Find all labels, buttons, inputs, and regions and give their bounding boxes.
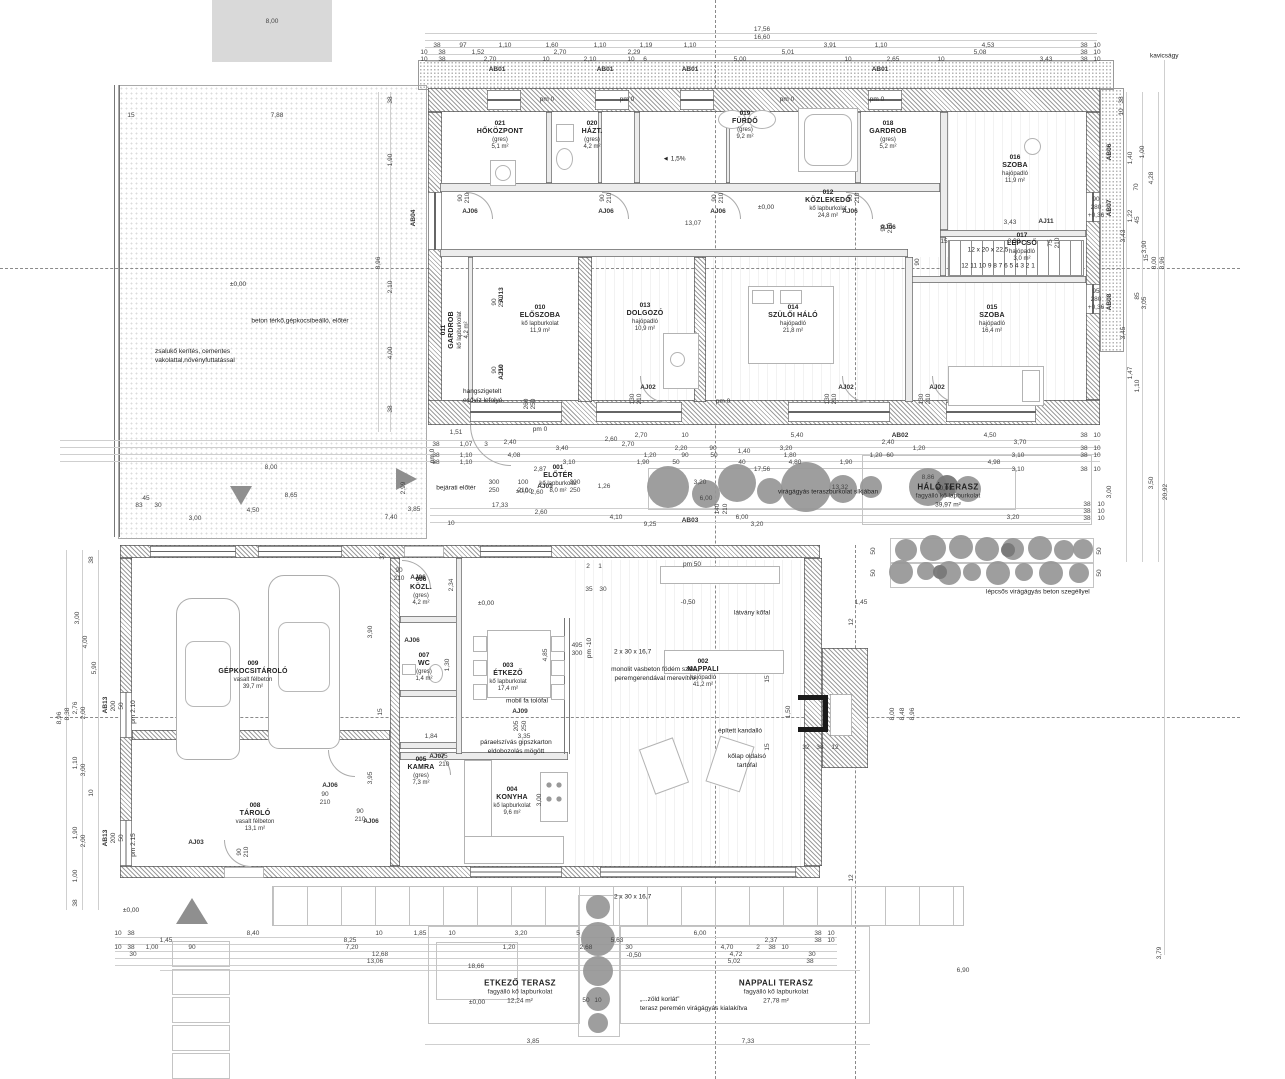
paving-pad — [172, 969, 230, 995]
washer-icon — [556, 124, 574, 142]
window-opening — [595, 90, 629, 110]
wall-stair-side — [940, 237, 946, 276]
dimension-label: 5,08 — [974, 50, 987, 57]
door-swing — [602, 192, 629, 219]
door-swing — [466, 192, 493, 219]
dimension-label: 200 — [111, 833, 118, 844]
wall-upper-top — [428, 88, 1100, 112]
dimension-label: 10 — [1097, 516, 1104, 523]
terrace-outline-nappali — [620, 926, 870, 1024]
annotation-note: mobil fa tolófal — [506, 698, 548, 707]
dimension-label: 15 — [1144, 254, 1151, 261]
chair-icon — [551, 636, 565, 652]
dimension-label: 38 — [1080, 50, 1087, 57]
kitchen-counter-icon — [464, 836, 564, 864]
wall-kitchen-top — [400, 752, 568, 760]
room-name: ELŐTÉR — [539, 472, 576, 481]
dimension-label: 200 — [111, 701, 118, 712]
dimension-label: 90 — [492, 366, 499, 373]
paving-pad — [172, 941, 230, 967]
dimension-label: 45 — [1135, 216, 1142, 223]
dimension-label: 5,40 — [791, 433, 804, 440]
room-area: 24,8 m² — [805, 213, 851, 221]
window-opening — [120, 820, 132, 866]
component-tag: AB13 — [103, 697, 110, 714]
component-tag: AB13 — [103, 830, 110, 847]
dimension-label: 3,35 — [518, 734, 531, 741]
fence-line — [114, 85, 120, 537]
dimension-label: 1,90 — [73, 827, 80, 840]
staircase-treads — [948, 240, 1084, 276]
annotation-note: bejárati előtér — [436, 485, 475, 494]
dimension-label: 38 — [1080, 433, 1087, 440]
dimension-label: 8,00 — [890, 708, 897, 721]
paving-pad — [172, 997, 230, 1023]
garage-door-opening — [258, 546, 342, 557]
room-stamp: 021 HŐKÖZPONT (gres) 5,1 m² — [477, 120, 524, 152]
dimension-label: 85 — [1135, 292, 1142, 299]
dim-line — [1142, 92, 1143, 562]
dim-line — [60, 440, 1100, 441]
chair-icon — [670, 352, 685, 367]
wall-partition-thick — [578, 257, 592, 402]
dimension-label: 50 — [871, 547, 878, 554]
floor-plan-canvas: 17,5616,6038971,101,601,101,191,103,911,… — [0, 0, 1285, 1079]
window-opening — [487, 90, 521, 110]
dimension-label: 3,90 — [368, 626, 375, 639]
dimension-label: 10 — [681, 433, 688, 440]
dimension-label: 38 — [433, 43, 440, 50]
dimension-label: 8,48 — [900, 708, 907, 721]
toilet-icon — [428, 664, 443, 683]
wall-room015-top — [912, 276, 1086, 283]
dimension-label: 6,90 — [957, 968, 970, 975]
planting-bed-outline — [890, 538, 1094, 564]
dimension-label: 205 — [514, 721, 521, 732]
dimension-label: 4,00 — [83, 636, 90, 649]
dimension-label: 38 — [438, 50, 445, 57]
component-tag: AJ06 — [404, 638, 420, 645]
room-area: 4,2 m² — [410, 600, 432, 608]
window-opening — [120, 692, 132, 738]
dim-line — [66, 550, 67, 910]
dimension-label: 10 — [1093, 43, 1100, 50]
dimension-label: 1,10 — [875, 43, 888, 50]
window-opening — [596, 402, 682, 422]
dimension-label: 4,50 — [984, 433, 997, 440]
dimension-label: 1,84 — [425, 734, 438, 741]
dimension-label: 3,00 — [1107, 486, 1114, 499]
gravel-bed-top — [418, 60, 1114, 90]
dimension-label: 210 — [320, 800, 331, 807]
site-gray-block — [212, 0, 332, 62]
dim-line — [98, 550, 99, 910]
dimension-label: 1,19 — [640, 43, 653, 50]
dimension-label: 90 — [881, 224, 888, 231]
level-marker: pm 0 — [533, 427, 547, 434]
window-opening — [480, 546, 552, 557]
dimension-label: 2,76 — [73, 702, 80, 715]
dimension-label: 3,79 — [1157, 947, 1164, 960]
entrance-arrow-marker — [396, 468, 417, 490]
dim-line — [1158, 92, 1159, 562]
dimension-label: 3,91 — [824, 43, 837, 50]
dim-line — [425, 47, 1097, 48]
chair-icon — [551, 684, 565, 700]
dimension-label: 300 — [570, 480, 581, 487]
car-icon — [268, 575, 340, 749]
dimension-label: 2,87 — [534, 467, 547, 474]
dimension-label: 2,29 — [628, 50, 641, 57]
level-marker: ±0,00 — [123, 908, 139, 915]
dimension-label: 90 — [458, 194, 465, 201]
room-floor-finish: (gres) — [477, 137, 524, 145]
component-tag: AJ06 — [880, 225, 896, 232]
room-number: 021 — [477, 120, 524, 128]
wall-partition — [468, 257, 473, 402]
room-number: 001 — [539, 464, 576, 472]
dimension-label: 100 — [518, 480, 529, 487]
door-swing — [402, 560, 431, 589]
room-stamp: 004 KONYHA kő lapburkolat 9,6 m² — [493, 786, 530, 818]
dimension-label: 50 — [1097, 547, 1104, 554]
door-swing-entrance — [470, 425, 511, 466]
dim-line — [390, 92, 391, 432]
dimension-label: 1,52 — [472, 50, 485, 57]
driveway-paving — [118, 85, 427, 539]
room-number: 008 — [236, 802, 275, 810]
dim-line — [1126, 92, 1127, 562]
dim-line — [425, 40, 1097, 41]
direction-marker — [176, 898, 208, 924]
dimension-label: 15 — [378, 708, 385, 715]
room-area: 5,2 m² — [869, 144, 907, 152]
room-floor-finish: kő lapburkolat — [539, 481, 576, 489]
dimension-label: 90 — [356, 809, 363, 816]
component-tag: AJ10 — [499, 364, 506, 380]
dimension-label: 300 — [489, 480, 500, 487]
component-tag: AB03 — [682, 518, 699, 525]
floor-wood-room016 — [948, 112, 1082, 230]
dimension-label: 210 — [355, 817, 366, 824]
room-area: 9,6 m² — [493, 810, 530, 818]
dimension-label: 10 — [1093, 467, 1100, 474]
window-opening — [600, 867, 796, 877]
car-icon — [176, 598, 240, 760]
room-floor-finish: kő lapburkolat — [457, 311, 465, 349]
car-cabin — [278, 622, 330, 692]
bathtub-basin-icon — [804, 114, 852, 166]
door-swing — [714, 192, 741, 219]
window-opening — [428, 192, 442, 250]
wall-garage-separator — [390, 558, 400, 866]
room-area: 8,0 m² — [539, 488, 576, 496]
dimension-label: 250 — [522, 721, 529, 732]
dimension-label: 250 — [499, 297, 506, 308]
dim-line — [425, 61, 1097, 62]
garage-door-opening — [150, 546, 236, 557]
dimension-label: 1,40 — [1128, 152, 1135, 165]
gravel-bed-right — [1100, 88, 1124, 352]
dimension-label: 10 — [1097, 502, 1104, 509]
sink-icon — [748, 110, 776, 129]
dimension-label: 3,00 — [75, 612, 82, 625]
dimension-label: 3,50 — [1149, 477, 1156, 490]
dimension-label: 90 — [321, 792, 328, 799]
room-stamp: 001 ELŐTÉR kő lapburkolat 8,0 m² — [539, 464, 576, 496]
window-opening — [1086, 284, 1100, 314]
dimension-label: 250 — [489, 488, 500, 495]
chair-icon — [473, 660, 487, 676]
room-number: 010 — [520, 304, 561, 312]
room-floor-finish: kő lapburkolat — [520, 321, 561, 329]
dimension-label: 10 — [1093, 433, 1100, 440]
room-area: 13,1 m² — [236, 826, 275, 834]
room-name: TÁROLÓ — [236, 810, 275, 819]
dimension-label: 250 — [499, 365, 506, 376]
dimension-label: 1,60 — [546, 43, 559, 50]
dimension-label: 1,26 — [598, 484, 611, 491]
paving-pad — [172, 1053, 230, 1079]
terrace-table-ghost — [436, 942, 518, 1000]
wall-storage-top — [132, 730, 390, 740]
direction-marker — [230, 486, 252, 505]
dimension-label: 38 — [73, 899, 80, 906]
dimension-label: 8,96 — [910, 708, 917, 721]
chair-icon — [1024, 138, 1041, 155]
sink-icon — [402, 664, 416, 675]
dimension-label: 10 — [1097, 509, 1104, 516]
room-number: 007 — [415, 652, 432, 660]
room-name: GARDROB — [448, 311, 457, 349]
dimension-label: 2,70 — [635, 433, 648, 440]
component-tag: AJ03 — [188, 840, 204, 847]
dimension-label: 10 — [89, 789, 96, 796]
room-stamp: 008 TÁROLÓ vasalt félbeton 13,1 m² — [236, 802, 275, 834]
dimension-label: 1,22 — [1128, 210, 1135, 223]
door-opening — [224, 867, 264, 878]
room-number: 004 — [493, 786, 530, 794]
window-opening — [470, 867, 562, 877]
dimension-label: 10 — [1093, 50, 1100, 57]
paving-pad — [172, 1025, 230, 1051]
walkway-slats — [272, 886, 964, 926]
dimension-label: 50 — [871, 569, 878, 576]
wall-upper-right — [1086, 112, 1100, 400]
chair-icon — [473, 684, 487, 700]
wall-upper-left — [428, 112, 442, 425]
room-name: KONYHA — [493, 794, 530, 803]
wall-partition — [400, 742, 458, 749]
dimension-label: 10 — [420, 50, 427, 57]
dimension-label: 70 — [1134, 183, 1141, 190]
dim-line — [1164, 60, 1165, 955]
room-name: HŐKÖZPONT — [477, 128, 524, 137]
wall-corridor-bottom — [440, 249, 908, 257]
pillow-icon — [1022, 370, 1040, 402]
dimension-label: 250 — [570, 488, 581, 495]
dimension-label: 2,60 — [531, 490, 544, 497]
dimension-label: 5,01 — [782, 50, 795, 57]
room-floor-finish: vasalt félbeton — [236, 819, 275, 827]
pillow-icon — [780, 290, 802, 304]
room-floor-finish: (gres) — [869, 137, 907, 145]
dimension-label: 210 — [888, 223, 895, 234]
component-tag: AJ01 — [537, 484, 553, 491]
window-opening — [1086, 192, 1100, 222]
window-opening — [868, 90, 902, 110]
window-opening — [470, 402, 562, 422]
level-marker: ±0,00 — [516, 489, 532, 496]
dim-line — [425, 54, 1097, 55]
dimension-label: 1,00 — [1140, 146, 1147, 159]
component-tag: AJ06 — [322, 783, 338, 790]
boiler-dial-icon — [495, 165, 511, 181]
room-stamp: 012 KÖZLEKEDŐ kő lapburkolat 24,8 m² — [805, 189, 851, 221]
dimension-label: 1,00 — [73, 870, 80, 883]
dimension-label: 97 — [459, 43, 466, 50]
dimension-label: 1,10 — [73, 757, 80, 770]
dim-line — [82, 550, 83, 910]
wall-lower-right-stone — [804, 558, 822, 866]
dimension-label: 1,10 — [1135, 380, 1142, 393]
room-stamp: 010 ELŐSZOBA kő lapburkolat 11,9 m² — [520, 304, 561, 336]
sink-icon — [718, 110, 746, 129]
room-floor-finish: kő lapburkolat — [805, 206, 851, 214]
dimension-label: 3,95 — [368, 772, 375, 785]
dimension-label: 210 — [518, 488, 529, 495]
chair-icon — [473, 636, 487, 652]
component-tag: AJ09 — [512, 709, 528, 716]
fireplace-icon — [823, 695, 828, 732]
dining-table-icon — [487, 630, 551, 698]
room-area: 5,1 m² — [477, 144, 524, 152]
dimension-label: 2,70 — [554, 50, 567, 57]
dimension-label: 1,45 — [855, 600, 868, 607]
room-floor-finish: (gres) — [410, 593, 432, 601]
door-swing — [328, 750, 355, 777]
dimension-label: 1,10 — [499, 43, 512, 50]
room-area: 11,9 m² — [520, 328, 561, 336]
component-tag: AB02 — [892, 433, 909, 440]
component-tag: AJ13 — [499, 287, 506, 303]
room-number: 018 — [869, 120, 907, 128]
media-board-icon — [660, 566, 780, 584]
floor-wood-living — [575, 560, 807, 866]
dim-line — [378, 92, 379, 432]
car-cabin — [185, 641, 231, 707]
toilet-icon — [556, 148, 573, 170]
wall-partition — [634, 112, 640, 183]
room-name: ELŐSZOBA — [520, 312, 561, 321]
dim-line — [425, 1044, 870, 1045]
planting-bed-outline — [648, 468, 1016, 510]
dimension-label: 4,53 — [982, 43, 995, 50]
dim-line — [425, 33, 1097, 34]
wall-room016-bottom — [940, 230, 1086, 237]
wall-partition — [400, 690, 458, 697]
door-swing — [224, 840, 251, 867]
annotation-note: ◄ 1,5% — [662, 156, 685, 165]
pillow-icon — [752, 290, 774, 304]
fireplace-niche — [830, 694, 852, 736]
dimension-label: 4,28 — [1149, 172, 1156, 185]
room-name: KÖZLEKEDŐ — [805, 197, 851, 206]
wall-partition — [546, 112, 552, 183]
level-marker: ±0,00 — [478, 601, 494, 608]
dimension-label: 1,10 — [684, 43, 697, 50]
dimension-label: 13,07 — [685, 221, 701, 228]
dimension-label: 38 — [89, 556, 96, 563]
dimension-label: 38 — [1080, 43, 1087, 50]
door-swing — [846, 192, 873, 219]
component-tag: AJ06 — [363, 819, 379, 826]
chair-icon — [551, 660, 565, 676]
room-floor-finish: kő lapburkolat — [493, 803, 530, 811]
dimension-label: 90 — [492, 298, 499, 305]
wall-partition — [456, 558, 462, 754]
room-stamp: 018 GARDROB (gres) 5,2 m² — [869, 120, 907, 152]
entry-door-opening — [404, 546, 444, 557]
dimension-label: 1,47 — [1128, 367, 1135, 380]
wall-partition — [598, 112, 602, 183]
dimension-label: 2,34 — [449, 579, 456, 592]
wall-partition — [400, 616, 458, 623]
sofa-icon — [664, 650, 784, 674]
room-area: 9,2 m² — [732, 134, 758, 142]
window-opening — [680, 90, 714, 110]
window-opening — [788, 402, 890, 422]
planting-bed-outline — [890, 562, 1094, 588]
wall-partition — [940, 112, 948, 230]
annotation-note: lépcsős virágágyás beton szegéllyel — [986, 589, 1090, 598]
dimension-label: 1,30 — [445, 659, 452, 672]
dim-line — [60, 447, 1100, 448]
level-marker: ±0,00 — [758, 205, 774, 212]
dimension-label: 1,10 — [594, 43, 607, 50]
room-name: GARDROB — [869, 128, 907, 137]
room-area: 7,3 m² — [407, 780, 434, 788]
dimension-label: 8,96 — [57, 712, 64, 725]
dimension-label: 50 — [1097, 569, 1104, 576]
hob-icon — [540, 772, 568, 822]
dimension-label: 1,51 — [450, 430, 463, 437]
